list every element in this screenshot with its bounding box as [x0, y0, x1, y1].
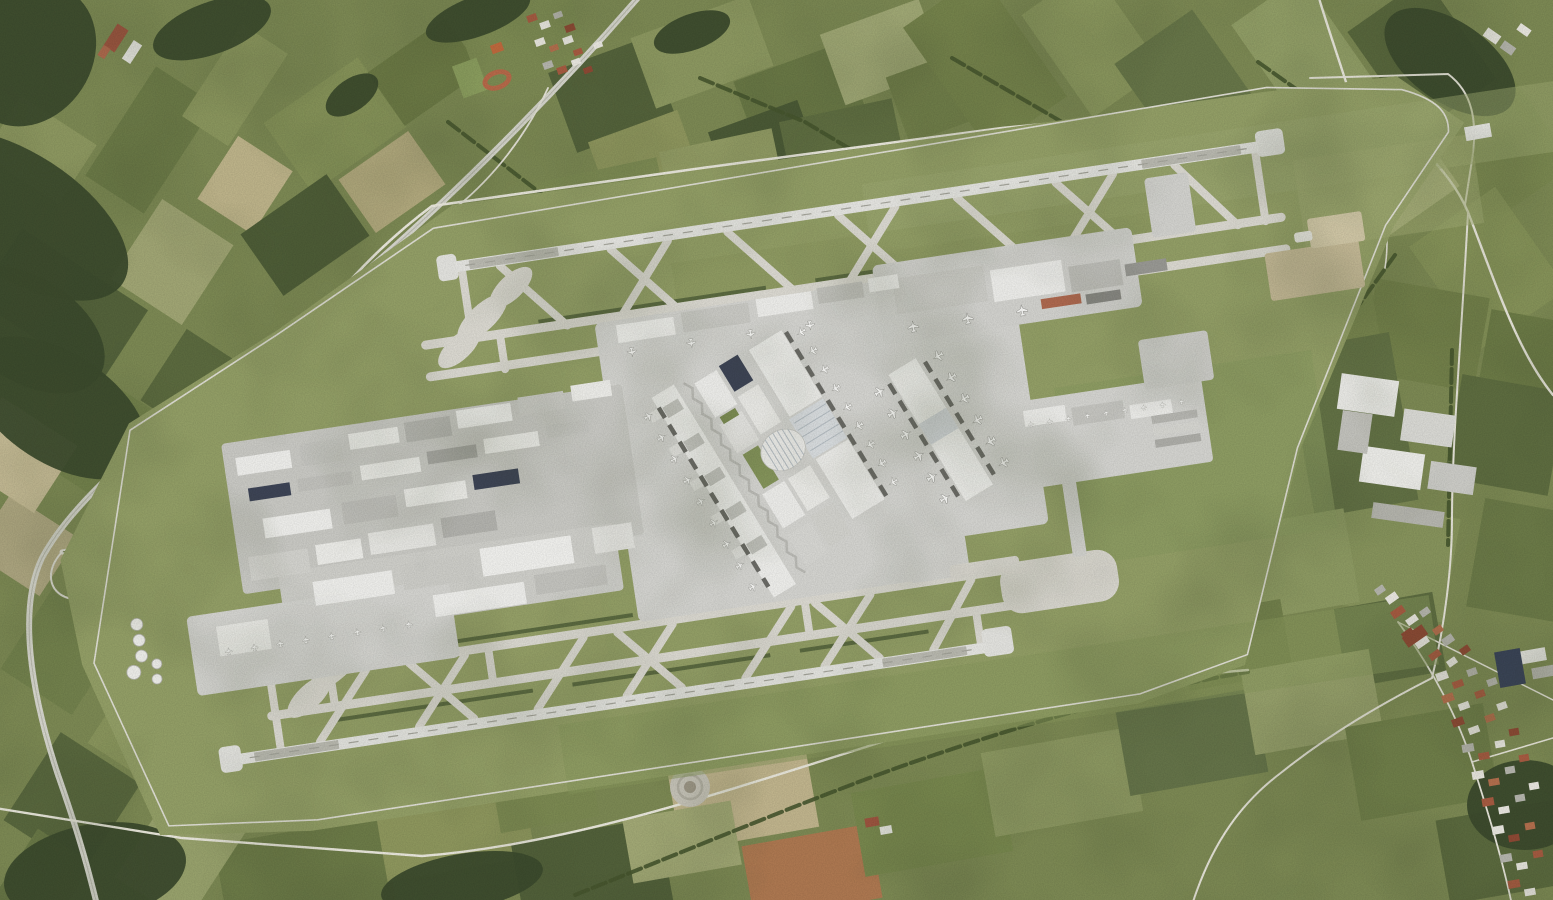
satellite-viewport — [0, 0, 1553, 900]
aerial-photo-munich-airport — [0, 0, 1553, 900]
scene-root — [0, 0, 1553, 900]
